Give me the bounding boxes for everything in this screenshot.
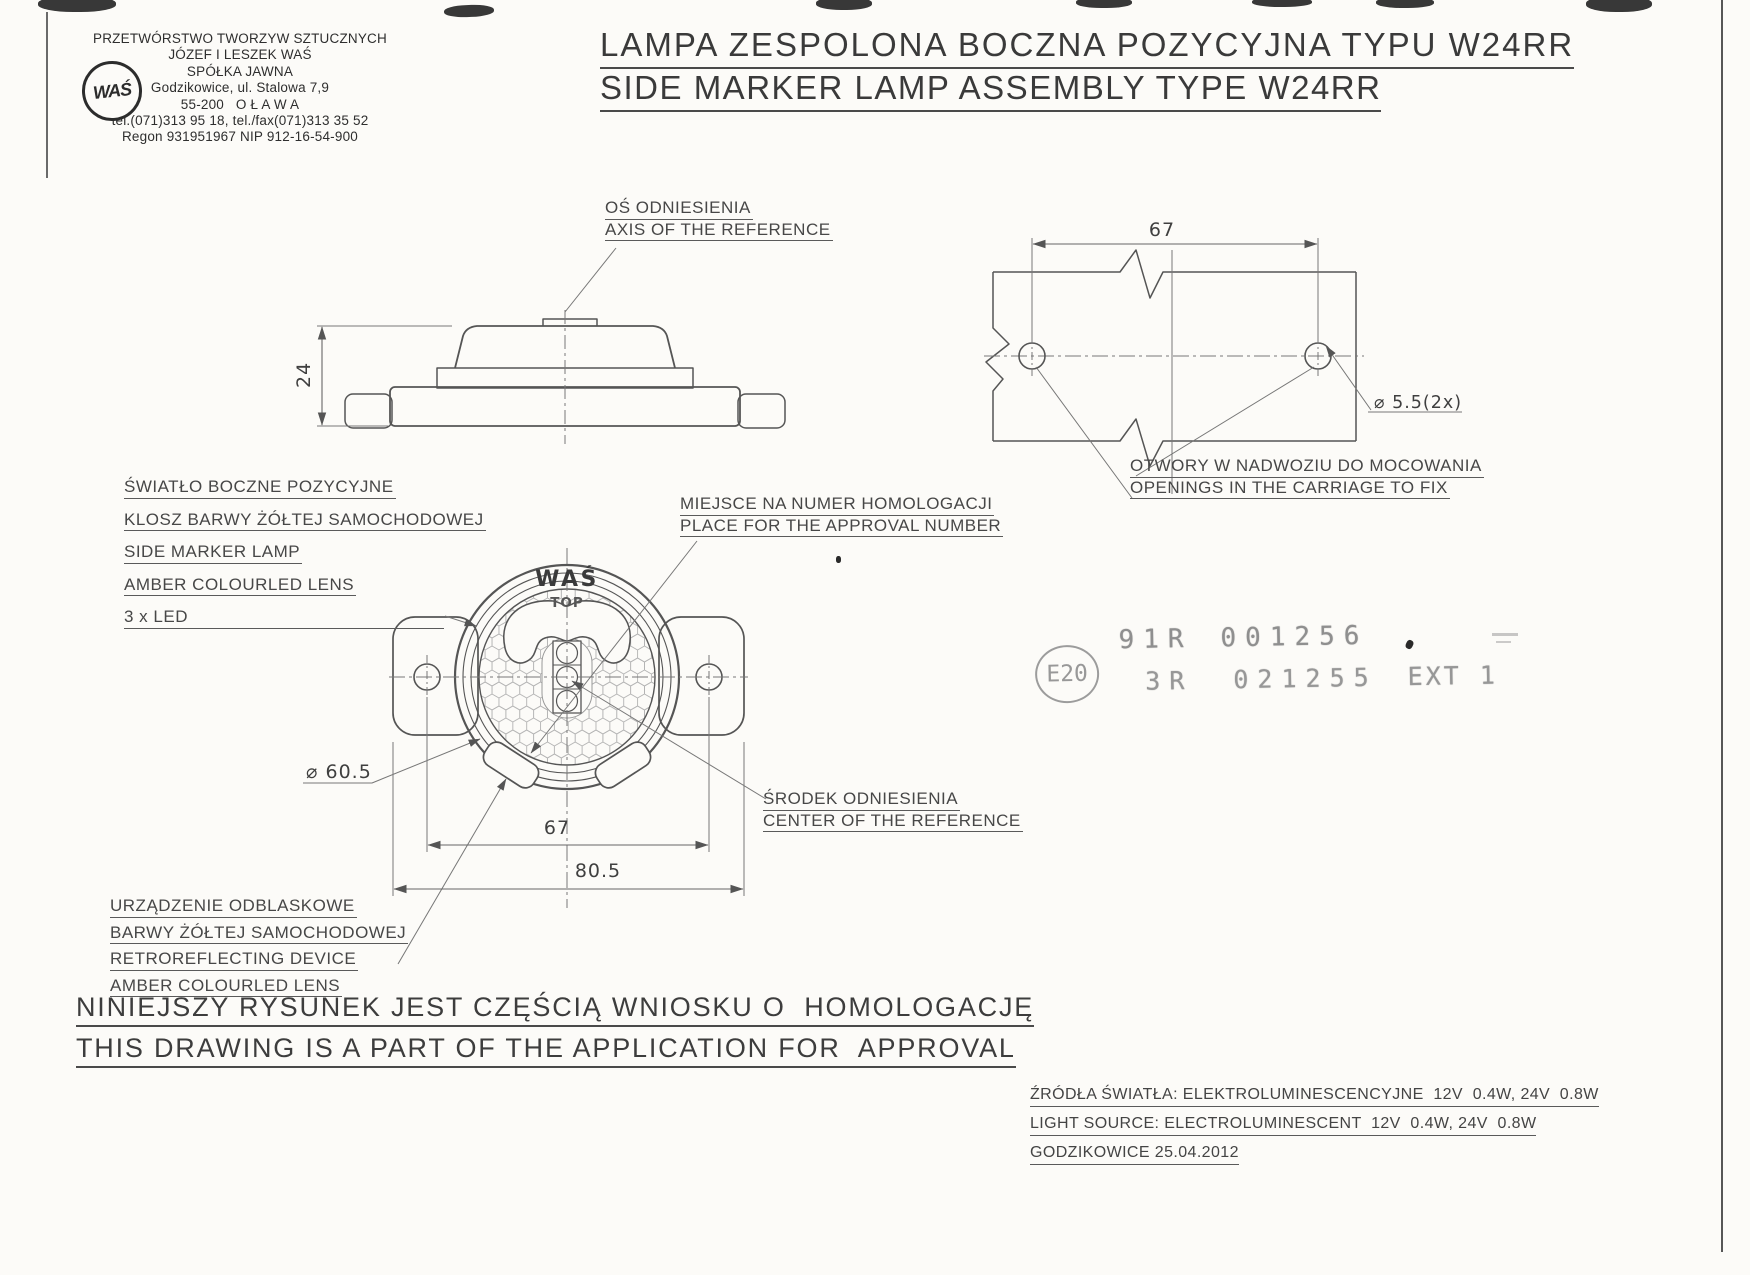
dim-text-67-plate: 67 bbox=[1149, 219, 1175, 241]
retro-line: RETROREFLECTING DEVICE bbox=[110, 949, 358, 971]
retro-line: BARWY ŻÓŁTEJ SAMOCHODOWEJ bbox=[110, 923, 408, 945]
side-marker-line: KLOSZ BARWY ŻÓŁTEJ SAMOCHODOWEJ bbox=[124, 510, 486, 532]
hole-centerline bbox=[1032, 336, 1318, 378]
statement-en: THIS DRAWING IS A PART OF THE APPLICATIO… bbox=[76, 1033, 1016, 1068]
stamp-row-2: 3R021255EXT 1 bbox=[1145, 661, 1498, 696]
axis-label-en: AXIS OF THE REFERENCE bbox=[605, 220, 833, 242]
dim-text-hole-dia: ⌀ 5.5(2x) bbox=[1374, 393, 1462, 413]
retroreflector-label: URZĄDZENIE ODBLASKOWE BARWY ŻÓŁTEJ SAMOC… bbox=[110, 896, 408, 1002]
side-marker-line: ŚWIATŁO BOCZNE POZYCYJNE bbox=[124, 477, 396, 499]
lamp-top-text: TOP bbox=[550, 595, 584, 611]
dim-ext-line bbox=[317, 326, 452, 426]
side-marker-line: AMBER COLOURLED LENS bbox=[124, 575, 356, 597]
side-ear-right bbox=[738, 394, 785, 428]
side-ear-left bbox=[345, 394, 392, 428]
light-source-pl: ŹRÓDŁA ŚWIATŁA: ELEKTROLUMINESCENCYJNE 1… bbox=[1030, 1086, 1599, 1107]
light-source-info: ŹRÓDŁA ŚWIATŁA: ELEKTROLUMINESCENCYJNE 1… bbox=[1030, 1086, 1599, 1173]
e-mark-circle: E20 bbox=[1035, 645, 1100, 704]
place-date: GODZIKOWICE 25.04.2012 bbox=[1030, 1144, 1239, 1165]
dim-text-24: 24 bbox=[293, 362, 315, 388]
center-label-pl: ŚRODEK ODNIESIENIA bbox=[763, 789, 960, 811]
approval-statement: NINIEJSZY RYSUNEK JEST CZĘŚCIĄ WNIOSKU O… bbox=[76, 992, 1034, 1074]
openings-label: OTWORY W NADWOZIU DO MOCOWANIA OPENINGS … bbox=[1130, 456, 1484, 499]
openings-label-en: OPENINGS IN THE CARRIAGE TO FIX bbox=[1130, 478, 1450, 500]
stamp-row-1: 91R001256 bbox=[1118, 621, 1368, 655]
side-marker-line: 3 x LED bbox=[124, 607, 444, 629]
approval-place-label: MIEJSCE NA NUMER HOMOLOGACJI PLACE FOR T… bbox=[680, 494, 1003, 537]
retro-leader bbox=[398, 779, 506, 964]
axis-label-pl: OŚ ODNIESIENIA bbox=[605, 198, 753, 220]
dim-ext-line bbox=[1032, 238, 1318, 340]
axis-leader-line bbox=[565, 248, 616, 312]
center-reference-label: ŚRODEK ODNIESIENIA CENTER OF THE REFEREN… bbox=[763, 789, 1023, 832]
dim-text-lens-dia: ⌀ 60.5 bbox=[306, 761, 372, 783]
scanned-technical-drawing: PRZETWÓRSTWO TWORZYW SZTUCZNYCH JÓZEF I … bbox=[0, 0, 1750, 1275]
approval-label-en: PLACE FOR THE APPROVAL NUMBER bbox=[680, 516, 1003, 538]
statement-pl: NINIEJSZY RYSUNEK JEST CZĘŚCIĄ WNIOSKU O… bbox=[76, 992, 1034, 1027]
plate-top-edge bbox=[993, 250, 1356, 298]
dim-text-67-lamp: 67 bbox=[544, 817, 570, 839]
dim-text-80-5: 80.5 bbox=[575, 860, 621, 882]
side-top-tab bbox=[543, 319, 597, 326]
side-view-drawing bbox=[317, 248, 785, 444]
retro-line: URZĄDZENIE ODBLASKOWE bbox=[110, 896, 357, 918]
center-label-en: CENTER OF THE REFERENCE bbox=[763, 811, 1023, 833]
openings-label-pl: OTWORY W NADWOZIU DO MOCOWANIA bbox=[1130, 456, 1484, 478]
axis-reference-label: OŚ ODNIESIENIA AXIS OF THE REFERENCE bbox=[605, 198, 833, 241]
approval-stamp: E20 91R001256 3R021255EXT 1 bbox=[1034, 611, 1456, 718]
side-marker-label: ŚWIATŁO BOCZNE POZYCYJNE KLOSZ BARWY ŻÓŁ… bbox=[124, 477, 486, 640]
side-marker-line: SIDE MARKER LAMP bbox=[124, 542, 302, 564]
approval-label-pl: MIEJSCE NA NUMER HOMOLOGACJI bbox=[680, 494, 994, 516]
light-source-en: LIGHT SOURCE: ELECTROLUMINESCENT 12V 0.4… bbox=[1030, 1115, 1536, 1136]
lamp-brand-text: WAŚ bbox=[535, 566, 599, 592]
